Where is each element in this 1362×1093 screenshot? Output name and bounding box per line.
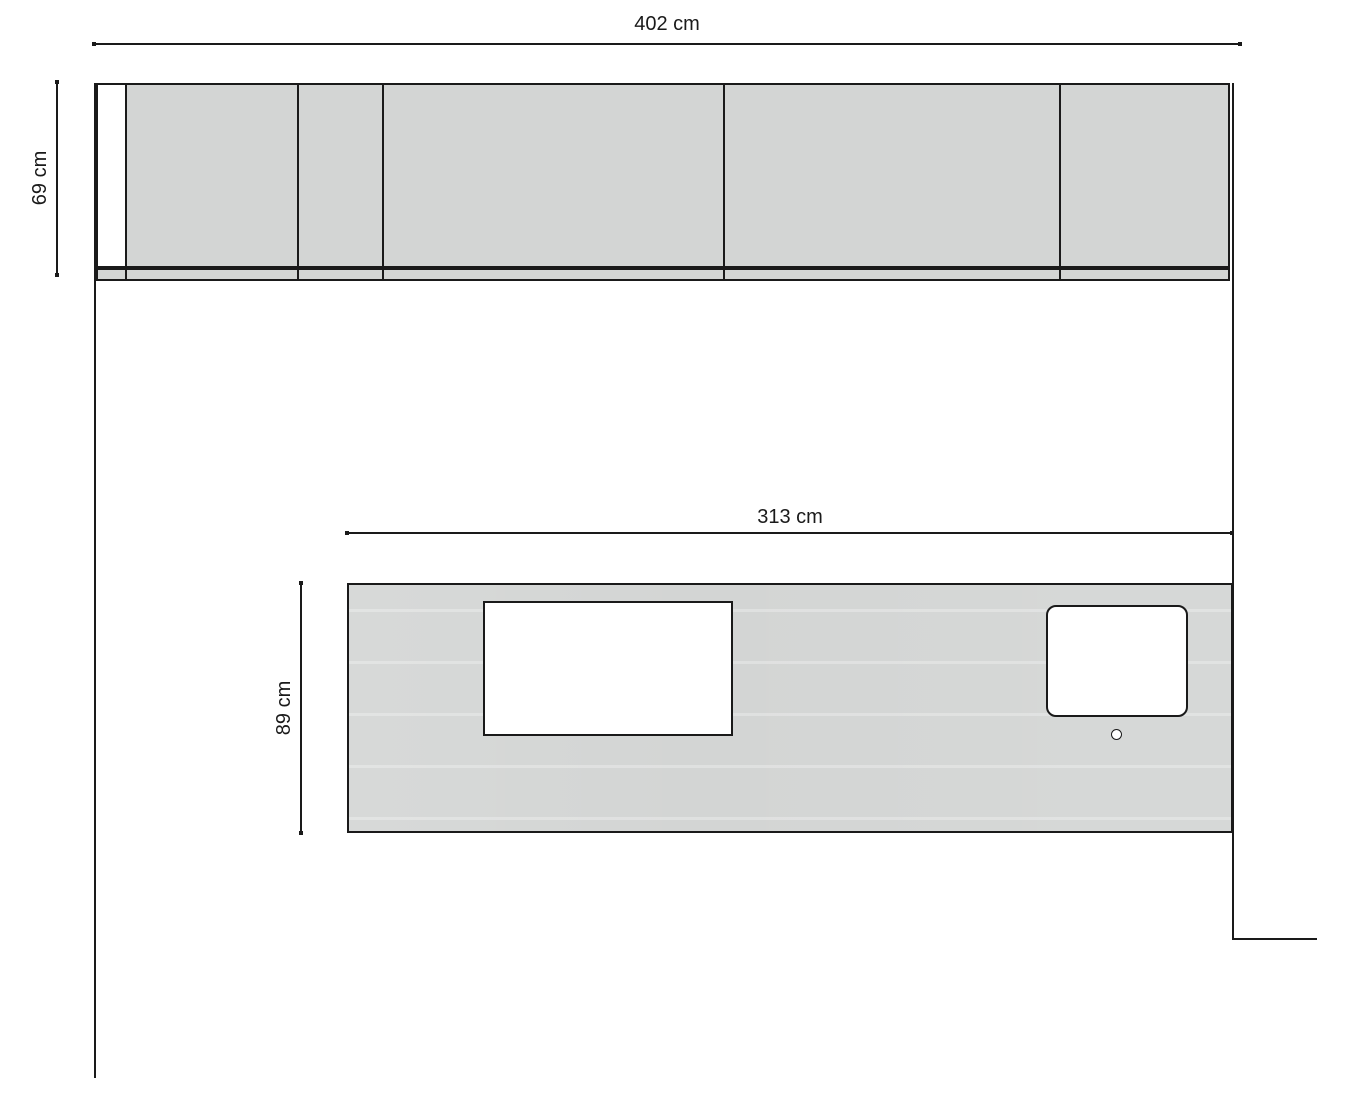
wall-line-bottom-right [1232,938,1317,940]
kitchen-plan-drawing: 402 cm 69 cm 313 cm 89 cm [0,0,1362,1093]
dim-tick [55,80,59,84]
countertop [347,583,1233,833]
wall-cabinet-band [96,83,1230,268]
dimension-countertop-width-label: 313 cm [347,505,1233,529]
cabinet-divider [297,85,299,266]
cabinet-divider [723,85,725,266]
dimension-total-width-label: 402 cm [94,12,1240,36]
dim-tick [1230,531,1234,535]
dimension-countertop-depth-line [300,583,302,833]
wall-cabinet-bottom-strip [96,268,1230,281]
cabinet-divider [125,268,127,281]
faucet-hole [1111,729,1122,740]
dimension-countertop-width-line [347,532,1233,534]
cabinet-divider [723,268,725,281]
dim-tick [299,581,303,585]
cabinet-divider [125,85,127,266]
cabinet-divider [1059,85,1061,266]
cabinet-divider [297,268,299,281]
dim-tick [345,531,349,535]
cabinet-divider [382,85,384,266]
dim-tick [1238,42,1242,46]
cabinet-divider [1059,268,1061,281]
cooktop-cutout [483,601,733,736]
dimension-total-width-line [94,43,1240,45]
dim-tick [92,42,96,46]
dimension-cabinet-height-label: 69 cm [28,128,52,228]
cabinet-divider [382,268,384,281]
dim-tick [299,831,303,835]
sink-cutout [1046,605,1188,717]
dimension-countertop-depth-label: 89 cm [272,658,296,758]
dimension-cabinet-height-line [56,82,58,275]
dim-tick [55,273,59,277]
cabinet-filler-panel [98,85,125,266]
